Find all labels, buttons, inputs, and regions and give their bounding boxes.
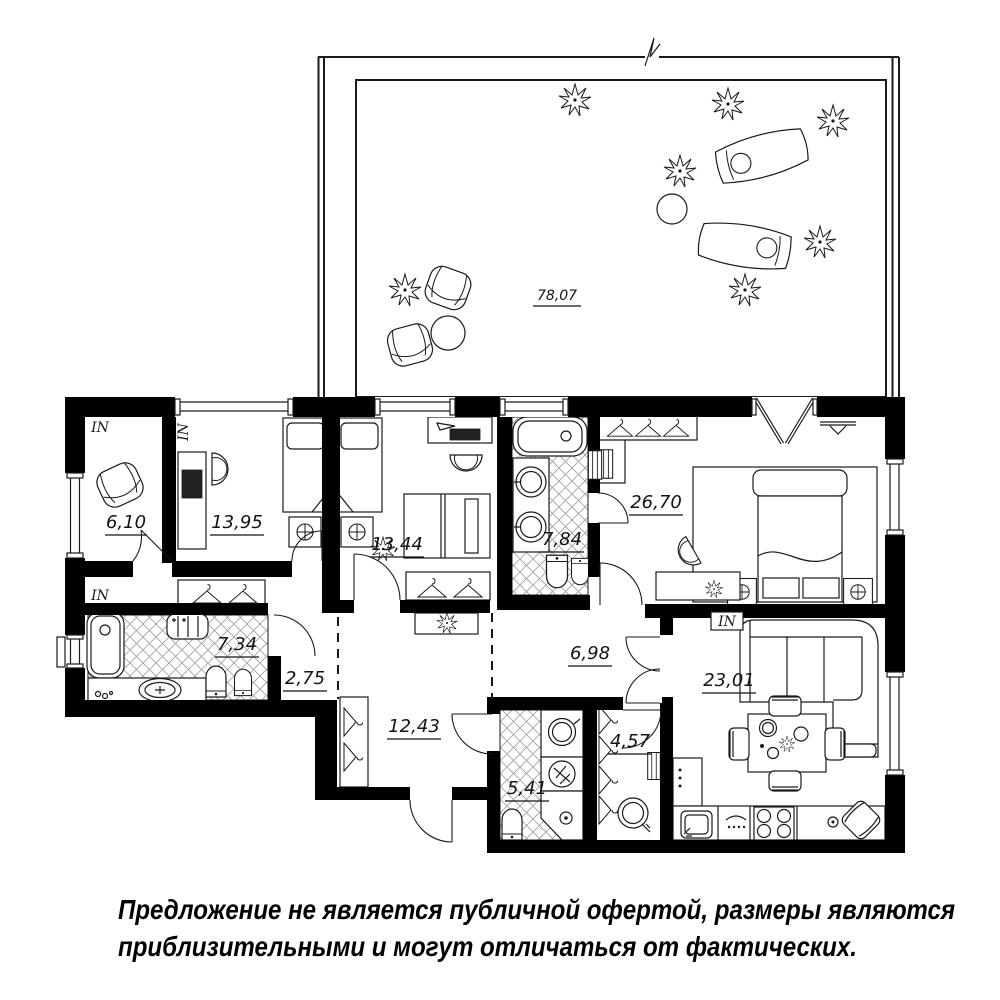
sun-lounger-icon	[696, 217, 793, 274]
monitor-icon	[182, 470, 202, 498]
door-wc	[452, 714, 492, 754]
disclaimer-text: Предложение не является публичной оферто…	[118, 891, 955, 965]
pillow-icon	[341, 423, 378, 449]
drain-icon	[100, 625, 110, 635]
door-bath-b	[274, 615, 315, 656]
plate-icon	[794, 727, 808, 741]
round-table-icon	[431, 316, 465, 350]
desk-chair-icon	[212, 453, 228, 485]
window	[885, 459, 905, 535]
hanger-icon	[599, 766, 618, 794]
nightstand-icon	[341, 517, 373, 547]
nightstand-icon	[844, 579, 873, 606]
fold-hanger-icon	[820, 422, 856, 434]
desk-icon	[178, 452, 206, 549]
plate-icon	[768, 748, 779, 759]
stool-icon	[673, 537, 701, 571]
area-corridor: 6,98	[570, 643, 610, 664]
toilet-icon	[547, 555, 568, 588]
decor-dots	[103, 694, 108, 699]
floorplan-page: 78,07	[0, 0, 1000, 1000]
vent-label: IN	[90, 420, 110, 436]
washer-hose	[642, 824, 650, 832]
burner-icon	[778, 825, 791, 838]
armchair-icon	[93, 459, 147, 511]
door-bedroom-master	[600, 563, 642, 605]
terrace: 78,07	[318, 38, 899, 397]
laptop-icon	[450, 429, 480, 440]
area-bath-a: 7,84	[542, 529, 582, 550]
area-bedroom-master: 26,70	[630, 492, 682, 513]
sink-inner	[521, 472, 542, 493]
utensil-dots	[733, 826, 735, 828]
area-cabinet: 6,10	[106, 512, 146, 533]
dressing-table-icon	[656, 572, 740, 600]
utensil-dots	[738, 826, 740, 828]
plant-icon	[729, 274, 761, 306]
area-bedroom-b: 13,44	[371, 534, 423, 555]
fridge-icon	[673, 758, 702, 806]
disclaimer-line-2: приблизительными и могут отличаться от ф…	[118, 928, 955, 965]
utensil-dots	[743, 826, 745, 828]
hanger-icon	[607, 420, 632, 437]
area-wc: 5,41	[507, 778, 547, 799]
drain-icon	[561, 431, 571, 441]
decor-dots	[96, 692, 101, 697]
armchair-icon	[422, 263, 474, 313]
bathtub-inner	[518, 421, 582, 452]
plate-icon	[763, 723, 774, 734]
area-bath-b: 7,34	[217, 634, 257, 655]
headboard-icon	[753, 470, 847, 496]
area-dressing: 4,57	[610, 731, 651, 752]
room-bedroom-b	[337, 417, 492, 600]
terrace-door	[752, 397, 817, 444]
washer-drum	[623, 803, 644, 824]
utensil-dots	[728, 826, 730, 828]
hanger-icon	[635, 420, 660, 437]
window	[57, 635, 85, 668]
bidet-icon	[572, 558, 589, 584]
door-kitchen-leaf1	[626, 637, 660, 671]
area-hallway: 12,43	[388, 716, 440, 737]
room-cabinet	[93, 459, 147, 511]
door-entrance	[410, 800, 452, 842]
hanger-icon	[599, 796, 618, 824]
armchair-icon	[385, 321, 435, 369]
toilet-icon	[502, 809, 522, 840]
pillow-icon	[287, 423, 324, 449]
door-bath-a	[598, 493, 628, 523]
window	[65, 473, 85, 558]
hanger-icon	[599, 706, 618, 734]
disclaimer-line-1: Предложение не является публичной оферто…	[118, 891, 955, 928]
area-bedroom-a: 13,95	[211, 512, 263, 533]
round-table-icon	[657, 194, 687, 224]
dresser-door	[465, 499, 478, 553]
fridge-dots	[679, 769, 682, 772]
window	[175, 397, 293, 417]
bidet-icon	[235, 669, 252, 695]
fridge-dots	[679, 785, 682, 788]
terrace-left-wall	[319, 57, 325, 397]
decor-dots	[110, 692, 113, 695]
floor-plan: 78,07	[0, 0, 1000, 1000]
door-bedroom-b	[354, 554, 400, 600]
towel-rail-icon	[648, 753, 661, 780]
plant-icon	[712, 88, 744, 120]
hanger-icon	[663, 420, 688, 437]
area-hall-small: 2,75	[285, 668, 325, 689]
room-dressing	[599, 706, 660, 832]
table-dot	[760, 744, 764, 748]
break-mark-icon	[645, 38, 660, 66]
window	[885, 672, 905, 775]
plant-icon	[389, 274, 421, 306]
hall-wardrobe	[178, 580, 265, 606]
vent-label: IN	[90, 588, 110, 604]
sun-lounger-icon	[713, 124, 812, 187]
area-kitchen-living: 23,01	[703, 670, 755, 691]
room-kitchen-living	[673, 620, 885, 841]
terrace-area-label: 78,07	[537, 288, 577, 304]
small-lamp-dot	[832, 821, 835, 824]
burner-icon	[778, 810, 791, 823]
foot-cushion	[803, 578, 839, 598]
burner-icon	[758, 810, 771, 823]
plant-icon	[817, 105, 849, 137]
plant-icon	[804, 226, 836, 258]
washer-drum	[549, 761, 575, 787]
plant-icon	[559, 84, 591, 116]
window	[375, 397, 455, 417]
terrace-right-wall	[893, 57, 900, 397]
door-kitchen-leaf2	[626, 669, 660, 703]
fridge-dots	[679, 777, 682, 780]
sink-inner	[553, 723, 572, 742]
kitchen-sink-inner	[685, 815, 708, 834]
toilet-icon	[206, 666, 226, 697]
desk-chair-icon	[450, 455, 482, 471]
burner-icon	[758, 825, 771, 838]
window	[500, 397, 568, 417]
room-hallway	[340, 613, 478, 787]
shower-dot	[564, 816, 568, 820]
foot-cushion	[763, 578, 799, 598]
towel-rail-icon	[588, 451, 601, 480]
sink-inner	[521, 517, 542, 538]
vent-label: IN	[176, 422, 192, 442]
vent-label: IN	[717, 614, 737, 630]
plant-icon	[664, 155, 696, 187]
